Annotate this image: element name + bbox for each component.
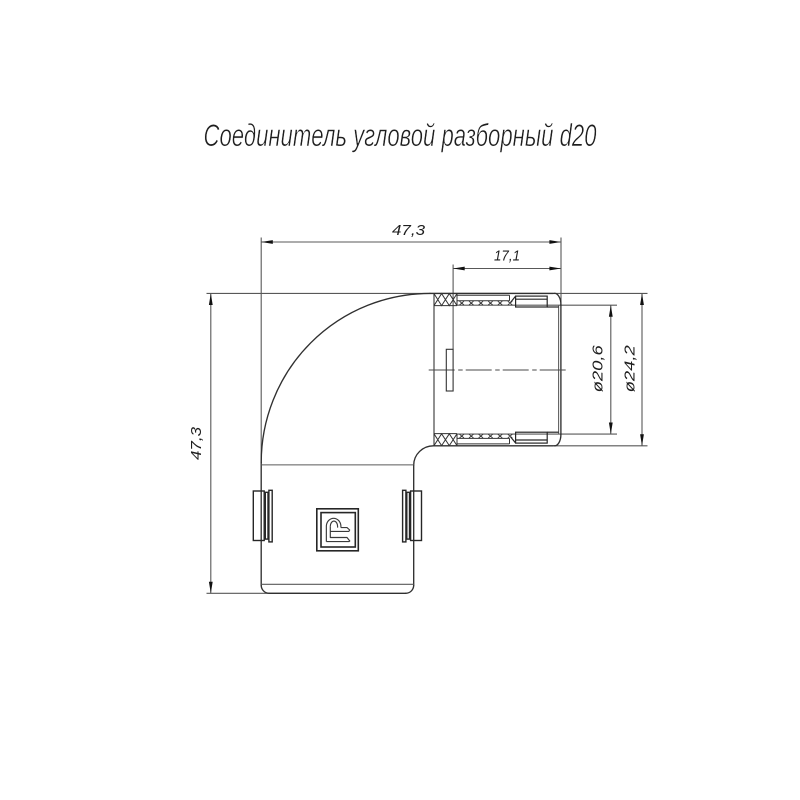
svg-text:47,3: 47,3 (392, 222, 426, 239)
svg-text:ø24,2: ø24,2 (622, 344, 639, 392)
svg-text:ø20,6: ø20,6 (590, 344, 607, 392)
svg-text:Соединитель угловой разборный: Соединитель угловой разборный d20 (204, 117, 597, 153)
svg-text:47,3: 47,3 (188, 426, 205, 460)
svg-text:17,1: 17,1 (494, 247, 520, 264)
